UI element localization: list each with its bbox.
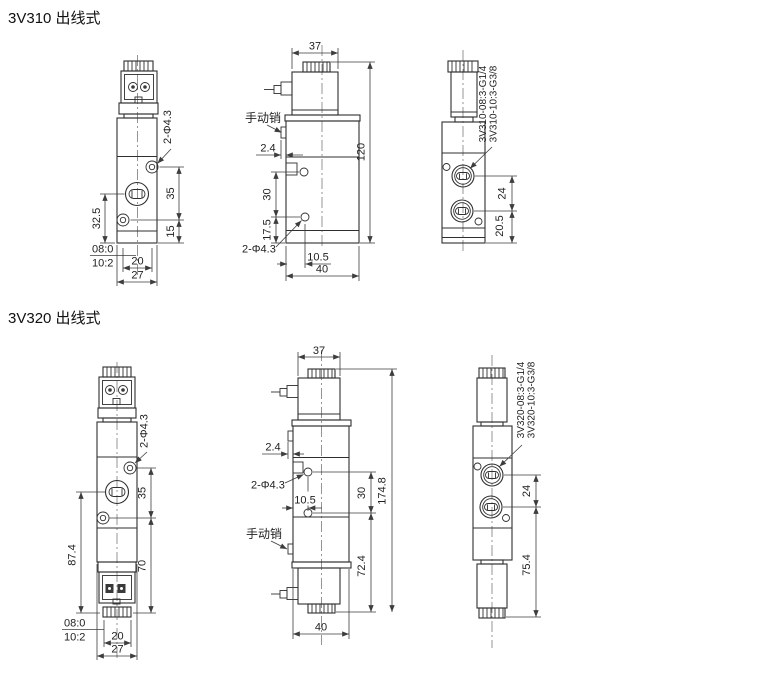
mounting-hole-bore bbox=[120, 217, 125, 222]
solenoid-housing bbox=[451, 72, 477, 117]
technical-drawing-canvas: 3V310 出线式 3V320 出线式 bbox=[0, 0, 764, 680]
mounting-hole-bore bbox=[149, 164, 154, 169]
dim-label-hole-note: 2-Φ4.3 bbox=[162, 110, 174, 144]
dimensions: 2-Φ4.3 35 70 87.4 08:0 10:2 bbox=[62, 414, 156, 660]
dim-label-hole-v: 30 bbox=[356, 487, 368, 499]
dim-label-top-width: 37 bbox=[313, 345, 325, 357]
dim-label-hole-bottom: 72.4 bbox=[356, 555, 368, 576]
dim-label-port-bottom: 32.5 bbox=[91, 208, 103, 229]
solenoid-housing bbox=[292, 72, 338, 115]
dim-label-pin: 2.4 bbox=[265, 442, 280, 454]
view-3v320-front: 2-Φ4.3 35 70 87.4 08:0 10:2 bbox=[62, 362, 156, 660]
work-port-ring bbox=[454, 203, 471, 220]
valve-body bbox=[473, 426, 512, 560]
dim-label-port-bottom: 87.4 bbox=[67, 544, 79, 565]
work-port bbox=[480, 496, 502, 518]
view-3v320-back: 3V320-08:3-G1/4 3V320-10:3-G3/8 24 75.4 bbox=[473, 355, 541, 648]
dim-label-hole-x: 10.5 bbox=[294, 495, 315, 507]
dim-label-hole-pitch: 20 bbox=[111, 631, 123, 643]
din-connector bbox=[121, 71, 157, 103]
cap-ribs bbox=[483, 608, 503, 618]
outline bbox=[473, 355, 512, 648]
mounting-hole bbox=[97, 512, 109, 524]
leader-line bbox=[500, 445, 523, 467]
view-3v310-front: 2-Φ4.3 35 15 32.5 20 27 08: bbox=[90, 55, 184, 286]
valve-body bbox=[117, 118, 157, 243]
mounting-hole-bore bbox=[100, 515, 105, 520]
dim-label-hole-v: 30 bbox=[262, 188, 274, 200]
connector-terminal-center bbox=[108, 587, 111, 590]
port-slot bbox=[456, 208, 469, 215]
view-3v310-side: 37 手动销 2.4 30 17.5 2-Φ4.3 10.5 40 120 bbox=[242, 41, 375, 282]
outline bbox=[97, 362, 137, 660]
port-slot bbox=[129, 190, 145, 199]
connector-notch bbox=[113, 399, 120, 405]
solenoid-housing bbox=[298, 568, 340, 604]
leader-line bbox=[470, 147, 492, 169]
port-slot bbox=[485, 504, 498, 511]
dim-label-depth: 40 bbox=[315, 622, 327, 634]
dimensions: 2-Φ4.3 35 15 32.5 20 27 08: bbox=[90, 110, 184, 286]
leader-line bbox=[267, 125, 282, 133]
dim-label-port-pitch: 24 bbox=[521, 485, 533, 497]
connector-terminal-center bbox=[120, 587, 123, 590]
connector-notch bbox=[135, 97, 142, 103]
connector-neck bbox=[455, 117, 473, 122]
dim-label-hole-spacing: 35 bbox=[165, 187, 177, 199]
connector-flange bbox=[119, 103, 158, 114]
cap-ribs bbox=[312, 369, 332, 378]
work-port bbox=[451, 200, 473, 222]
cable-plug bbox=[287, 588, 298, 600]
dim-label-pin: 2.4 bbox=[260, 143, 275, 155]
mounting-hole bbox=[475, 218, 482, 225]
connector-screw-center bbox=[143, 85, 147, 89]
cap-ribs bbox=[307, 62, 327, 72]
dim-label-port-pitch: 24 bbox=[497, 187, 509, 199]
cable-plug-step bbox=[280, 591, 287, 599]
dim-label-hole-note: 2-Φ4.3 bbox=[251, 480, 285, 492]
dimensions: 37 手动销 2.4 30 17.5 2-Φ4.3 10.5 40 120 bbox=[242, 41, 375, 282]
cable-plug bbox=[281, 82, 292, 95]
dim-label-top-width: 37 bbox=[309, 41, 321, 53]
pin-notch bbox=[286, 163, 297, 175]
dim-label-width: 27 bbox=[131, 270, 143, 282]
manual-pin-label: 手动销 bbox=[245, 111, 281, 125]
section-title-3v320: 3V320 出线式 bbox=[8, 310, 101, 327]
mounting-hole bbox=[146, 161, 158, 173]
dim-label-hole-x: 10.5 bbox=[307, 252, 328, 264]
dim-label-port-bottom: 20.5 bbox=[494, 215, 506, 236]
mounting-hole bbox=[300, 168, 308, 176]
dim-label-hole-pitch: 20 bbox=[131, 256, 143, 268]
dim-label-hole-spacing: 35 bbox=[137, 487, 149, 499]
thread-note-top: 08:0 bbox=[92, 244, 113, 256]
leader-line bbox=[285, 475, 304, 484]
dim-label-hole-bottom: 17.5 bbox=[262, 219, 274, 240]
view-3v320-side: 37 2.4 2-Φ4.3 10.5 30 72.4 174.8 手动销 40 bbox=[246, 345, 397, 645]
dim-label-hole-note: 2-Φ4.3 bbox=[139, 414, 151, 448]
dim-label-port-bottom: 75.4 bbox=[521, 554, 533, 575]
work-port-ring bbox=[483, 499, 500, 516]
body-flange bbox=[285, 115, 360, 121]
drawing-sheet: 3V310 出线式 3V320 出线式 bbox=[0, 0, 764, 680]
dimensions: 3V310-08:3-G1/4 3V310-10:3-G3/8 24 20.5 bbox=[470, 65, 517, 243]
connector-neck bbox=[124, 114, 153, 118]
mounting-hole bbox=[124, 462, 136, 474]
mounting-hole bbox=[117, 214, 129, 226]
dim-label-height: 120 bbox=[356, 143, 368, 161]
cable-plug-step bbox=[274, 86, 281, 94]
mounting-hole bbox=[301, 213, 309, 221]
mounting-hole bbox=[503, 515, 510, 522]
mounting-hole bbox=[304, 468, 312, 476]
dim-label-height: 174.8 bbox=[377, 477, 389, 505]
mounting-hole-bore bbox=[127, 465, 132, 470]
pin-notch bbox=[293, 462, 303, 473]
model-label-g14: 3V310-08:3-G1/4 bbox=[478, 65, 489, 142]
thread-note-bottom: 10:2 bbox=[92, 258, 113, 270]
model-label-g14: 3V320-08:3-G1/4 bbox=[516, 361, 527, 438]
dim-label-depth: 40 bbox=[316, 264, 328, 276]
connector-screw-center bbox=[121, 388, 125, 392]
outline bbox=[117, 55, 158, 276]
leader-line bbox=[158, 149, 172, 164]
manual-pin bbox=[288, 544, 293, 554]
manual-pin bbox=[281, 127, 286, 138]
cap-ribs bbox=[128, 61, 148, 71]
manual-pin-label: 手动销 bbox=[246, 527, 282, 541]
dim-label-lower: 70 bbox=[137, 560, 149, 572]
mounting-hole bbox=[443, 164, 450, 171]
dim-label-hole-note: 2-Φ4.3 bbox=[242, 244, 276, 256]
dim-label-width: 27 bbox=[111, 644, 123, 656]
dim-label-lower: 15 bbox=[165, 225, 177, 237]
model-label-g38: 3V310-10:3-G3/8 bbox=[489, 65, 500, 142]
cap-ribs bbox=[452, 61, 472, 72]
manual-pin bbox=[288, 431, 293, 441]
outline bbox=[264, 45, 360, 248]
cap-ribs bbox=[483, 368, 503, 378]
connector-screw-center bbox=[108, 388, 112, 392]
leader-line bbox=[271, 541, 287, 549]
cap-ribs bbox=[312, 604, 332, 613]
dimensions: 3V320-08:3-G1/4 3V320-10:3-G3/8 24 75.4 bbox=[500, 361, 542, 617]
model-label-g38: 3V320-10:3-G3/8 bbox=[527, 361, 538, 438]
cable-plug bbox=[287, 386, 298, 398]
thread-note-top: 08:0 bbox=[64, 618, 85, 630]
thread-note-bottom: 10:2 bbox=[64, 632, 85, 644]
cable-plug-step bbox=[280, 389, 287, 397]
view-3v310-back: 3V310-08:3-G1/4 3V310-10:3-G3/8 24 20.5 bbox=[442, 50, 517, 252]
connector-screw-center bbox=[131, 85, 135, 89]
section-title-3v310: 3V310 出线式 bbox=[8, 10, 101, 27]
mounting-hole bbox=[474, 463, 481, 470]
